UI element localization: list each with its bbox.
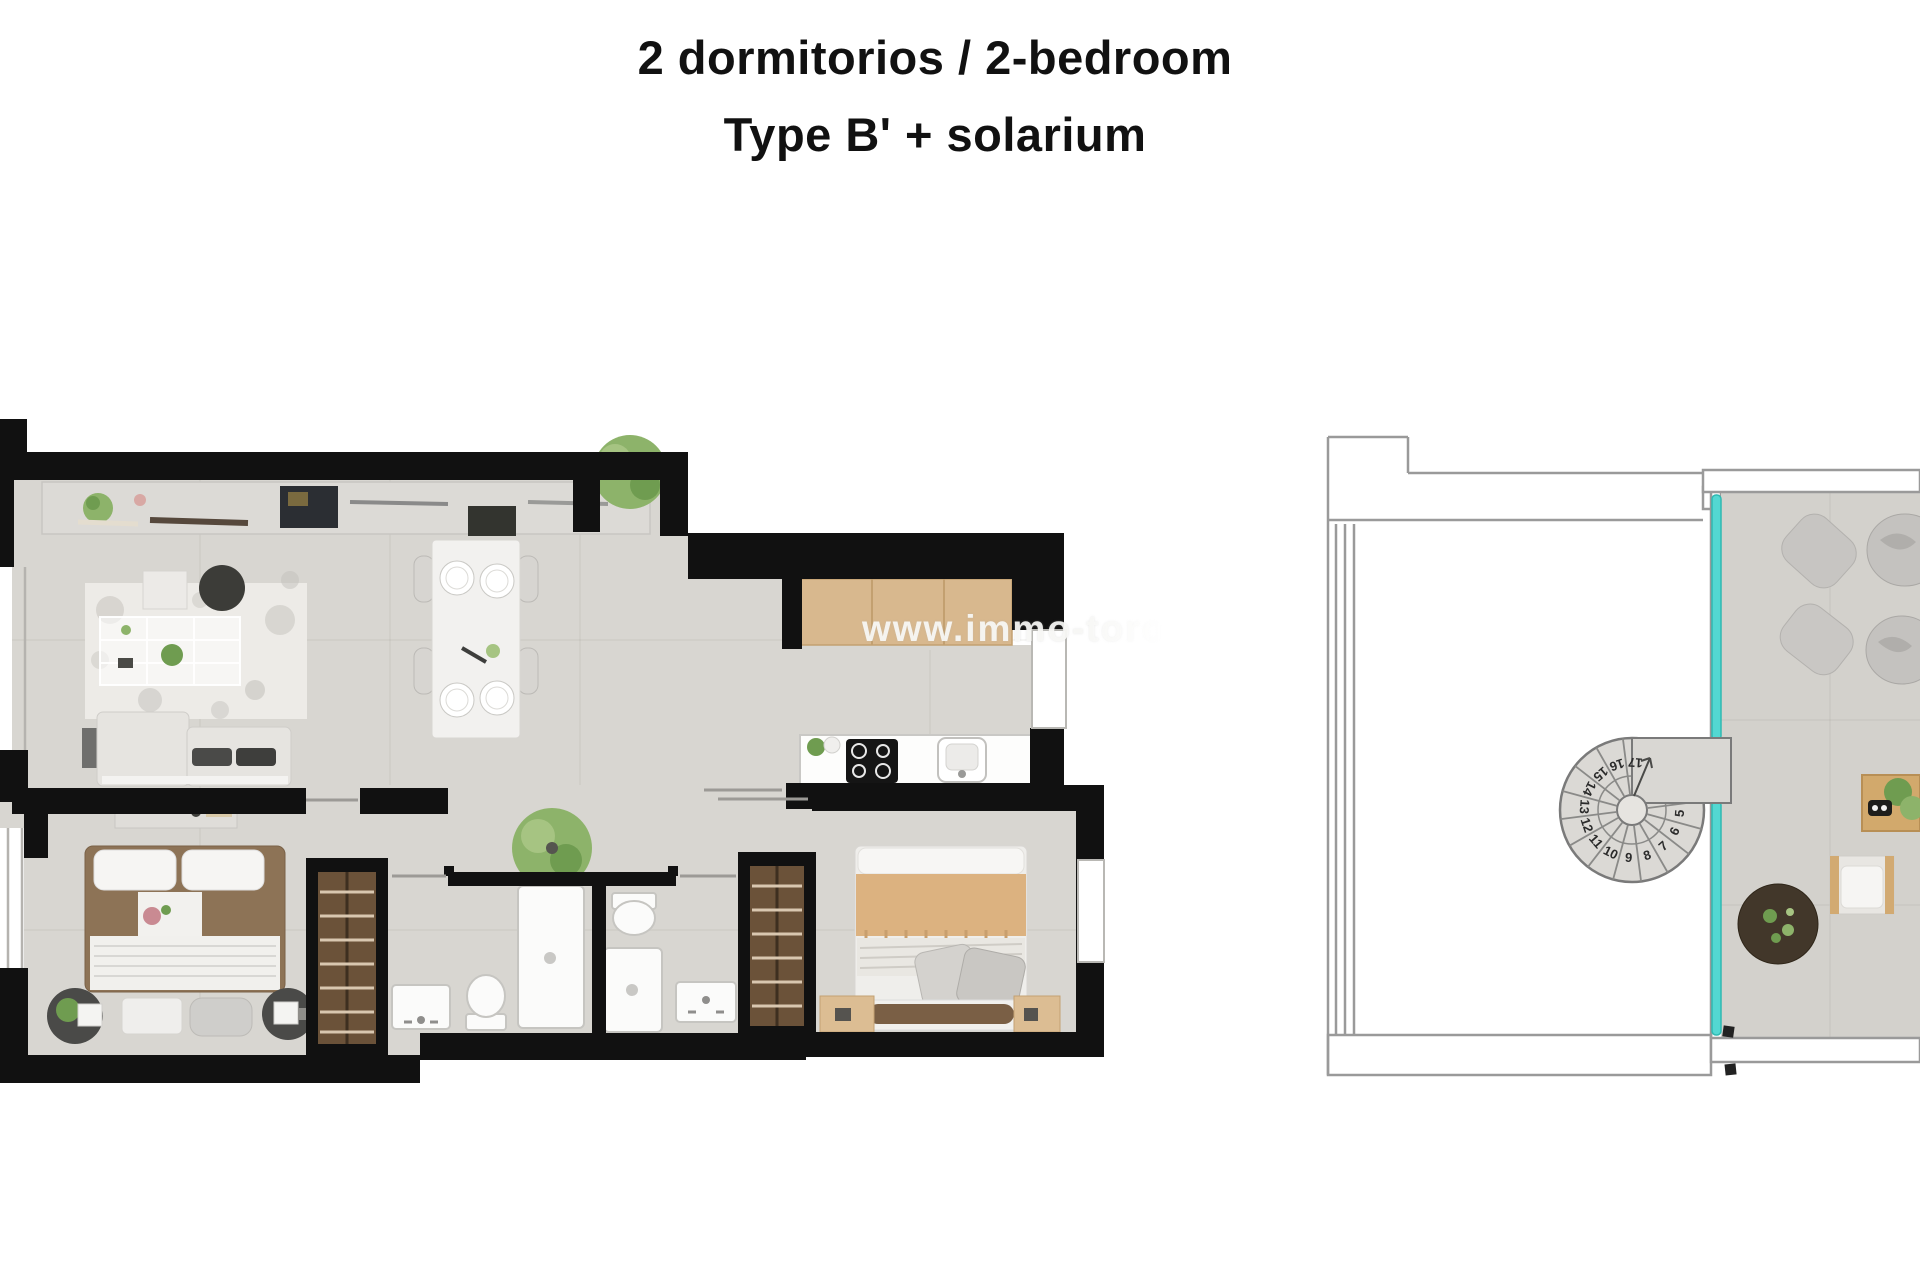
stair-step-number: 17 bbox=[1628, 755, 1643, 771]
dining-chair bbox=[518, 648, 538, 694]
sideboard-tray bbox=[78, 522, 138, 524]
terrace bbox=[1703, 470, 1920, 1075]
bed-pillow-bench bbox=[190, 998, 252, 1036]
toilet-1 bbox=[466, 975, 506, 1030]
pillow bbox=[182, 850, 264, 890]
floor-plan-sheet: 5 6 7 8 9 10 11 12 13 14 15 16 17 www.im… bbox=[0, 0, 1920, 1280]
table-remote bbox=[118, 658, 133, 668]
round-nightstand-left bbox=[47, 988, 103, 1044]
bedroom-2 bbox=[820, 846, 1060, 1032]
cooktop bbox=[846, 739, 898, 783]
nightstand-speaker bbox=[1024, 1008, 1038, 1021]
apartment-plan bbox=[0, 419, 1104, 1083]
side-table bbox=[143, 571, 187, 609]
stair-step-number: 13 bbox=[1577, 799, 1593, 814]
stair-center-post bbox=[1617, 795, 1647, 825]
coffee-table bbox=[100, 617, 240, 685]
sofa-cushion bbox=[192, 748, 232, 766]
terrace-bottom-wall bbox=[1711, 1038, 1920, 1062]
terrace-dot bbox=[1722, 1025, 1734, 1037]
master-bed bbox=[85, 846, 285, 992]
stair-step-number: 5 bbox=[1672, 809, 1687, 817]
solarium-plan: 5 6 7 8 9 10 11 12 13 14 15 16 17 bbox=[1328, 437, 1920, 1075]
table-leaf-icon bbox=[121, 625, 131, 635]
bed-flowers-icon bbox=[143, 907, 161, 925]
sideboard-handle bbox=[350, 502, 448, 504]
sink-1 bbox=[392, 985, 450, 1029]
dark-decor-item bbox=[468, 506, 516, 536]
kitchen-vase bbox=[824, 737, 840, 753]
spiral-staircase: 5 6 7 8 9 10 11 12 13 14 15 16 17 bbox=[1560, 738, 1731, 882]
table-plant-icon bbox=[161, 644, 183, 666]
centerpiece-icon bbox=[486, 644, 500, 658]
tray bbox=[1868, 800, 1892, 816]
tan-blanket bbox=[856, 874, 1026, 936]
glass-balustrade bbox=[1712, 495, 1721, 740]
sink-2 bbox=[676, 982, 736, 1022]
sofa-cushion bbox=[236, 748, 276, 766]
dark-pouf bbox=[199, 565, 245, 611]
master-window-recess bbox=[0, 828, 24, 968]
dining-chair bbox=[518, 556, 538, 602]
terrace-top-wall bbox=[1703, 470, 1920, 492]
wardrobe-1 bbox=[306, 858, 388, 1058]
stair-step-number: 9 bbox=[1625, 850, 1633, 865]
dining-chair bbox=[414, 556, 434, 602]
glass-balustrade bbox=[1712, 801, 1721, 1035]
title-line-1: 2 dormitorios / 2-bedroom bbox=[335, 30, 1535, 85]
sideboard-plant-icon bbox=[83, 493, 113, 523]
stair-landing bbox=[1632, 738, 1731, 803]
shower-drain-icon bbox=[626, 984, 638, 996]
outdoor-table bbox=[1862, 775, 1920, 831]
bedroom2-window bbox=[1078, 860, 1104, 962]
sideboard-plant-leaf-icon bbox=[86, 496, 100, 510]
tv-screen-detail bbox=[288, 492, 308, 506]
bedroom2-bed bbox=[855, 846, 1027, 1030]
nightstand-speaker bbox=[835, 1008, 851, 1021]
shower-drain-icon bbox=[544, 952, 556, 964]
pillow bbox=[94, 850, 176, 890]
bed-bench bbox=[122, 998, 182, 1034]
dining-chair bbox=[414, 648, 434, 694]
faucet-icon bbox=[958, 770, 966, 778]
toilet-2 bbox=[612, 893, 656, 935]
round-planter bbox=[1738, 884, 1818, 964]
seat-cushion bbox=[1841, 866, 1883, 908]
watermark: www.immo-toro bbox=[862, 608, 1166, 650]
title-line-2: Type B' + solarium bbox=[335, 107, 1535, 162]
dining-table bbox=[414, 540, 538, 738]
armchair bbox=[1830, 856, 1894, 914]
lamp-icon bbox=[78, 1004, 102, 1026]
bolster-pillow bbox=[868, 1004, 1014, 1024]
kitchen-plant-icon bbox=[807, 738, 825, 756]
roof-bottom-band bbox=[1328, 1035, 1711, 1075]
page-title: 2 dormitorios / 2-bedroom Type B' + sola… bbox=[335, 30, 1535, 162]
wardrobe-2 bbox=[738, 852, 816, 1037]
kitchen-sink bbox=[938, 738, 986, 782]
sideboard-knife bbox=[150, 520, 248, 523]
terrace-dot bbox=[1725, 1063, 1737, 1075]
pink-flowers-icon bbox=[134, 494, 146, 506]
lamp-icon bbox=[274, 1002, 298, 1024]
